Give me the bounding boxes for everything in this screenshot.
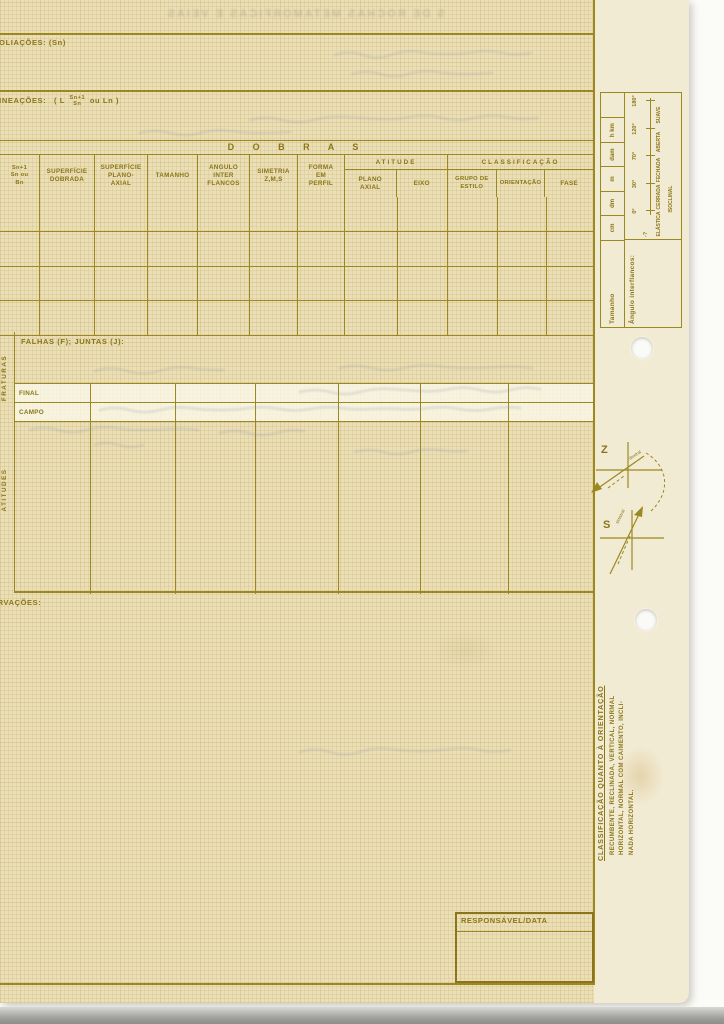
scanned-form-page: S DE ROCHAS METAMORFICAS E VEIAS FOLIAÇÕ… — [0, 0, 724, 1024]
scanner-background-band — [0, 1007, 724, 1024]
ghost-handwriting — [0, 0, 689, 1003]
paper-sheet: S DE ROCHAS METAMORFICAS E VEIAS FOLIAÇÕ… — [0, 0, 689, 1003]
